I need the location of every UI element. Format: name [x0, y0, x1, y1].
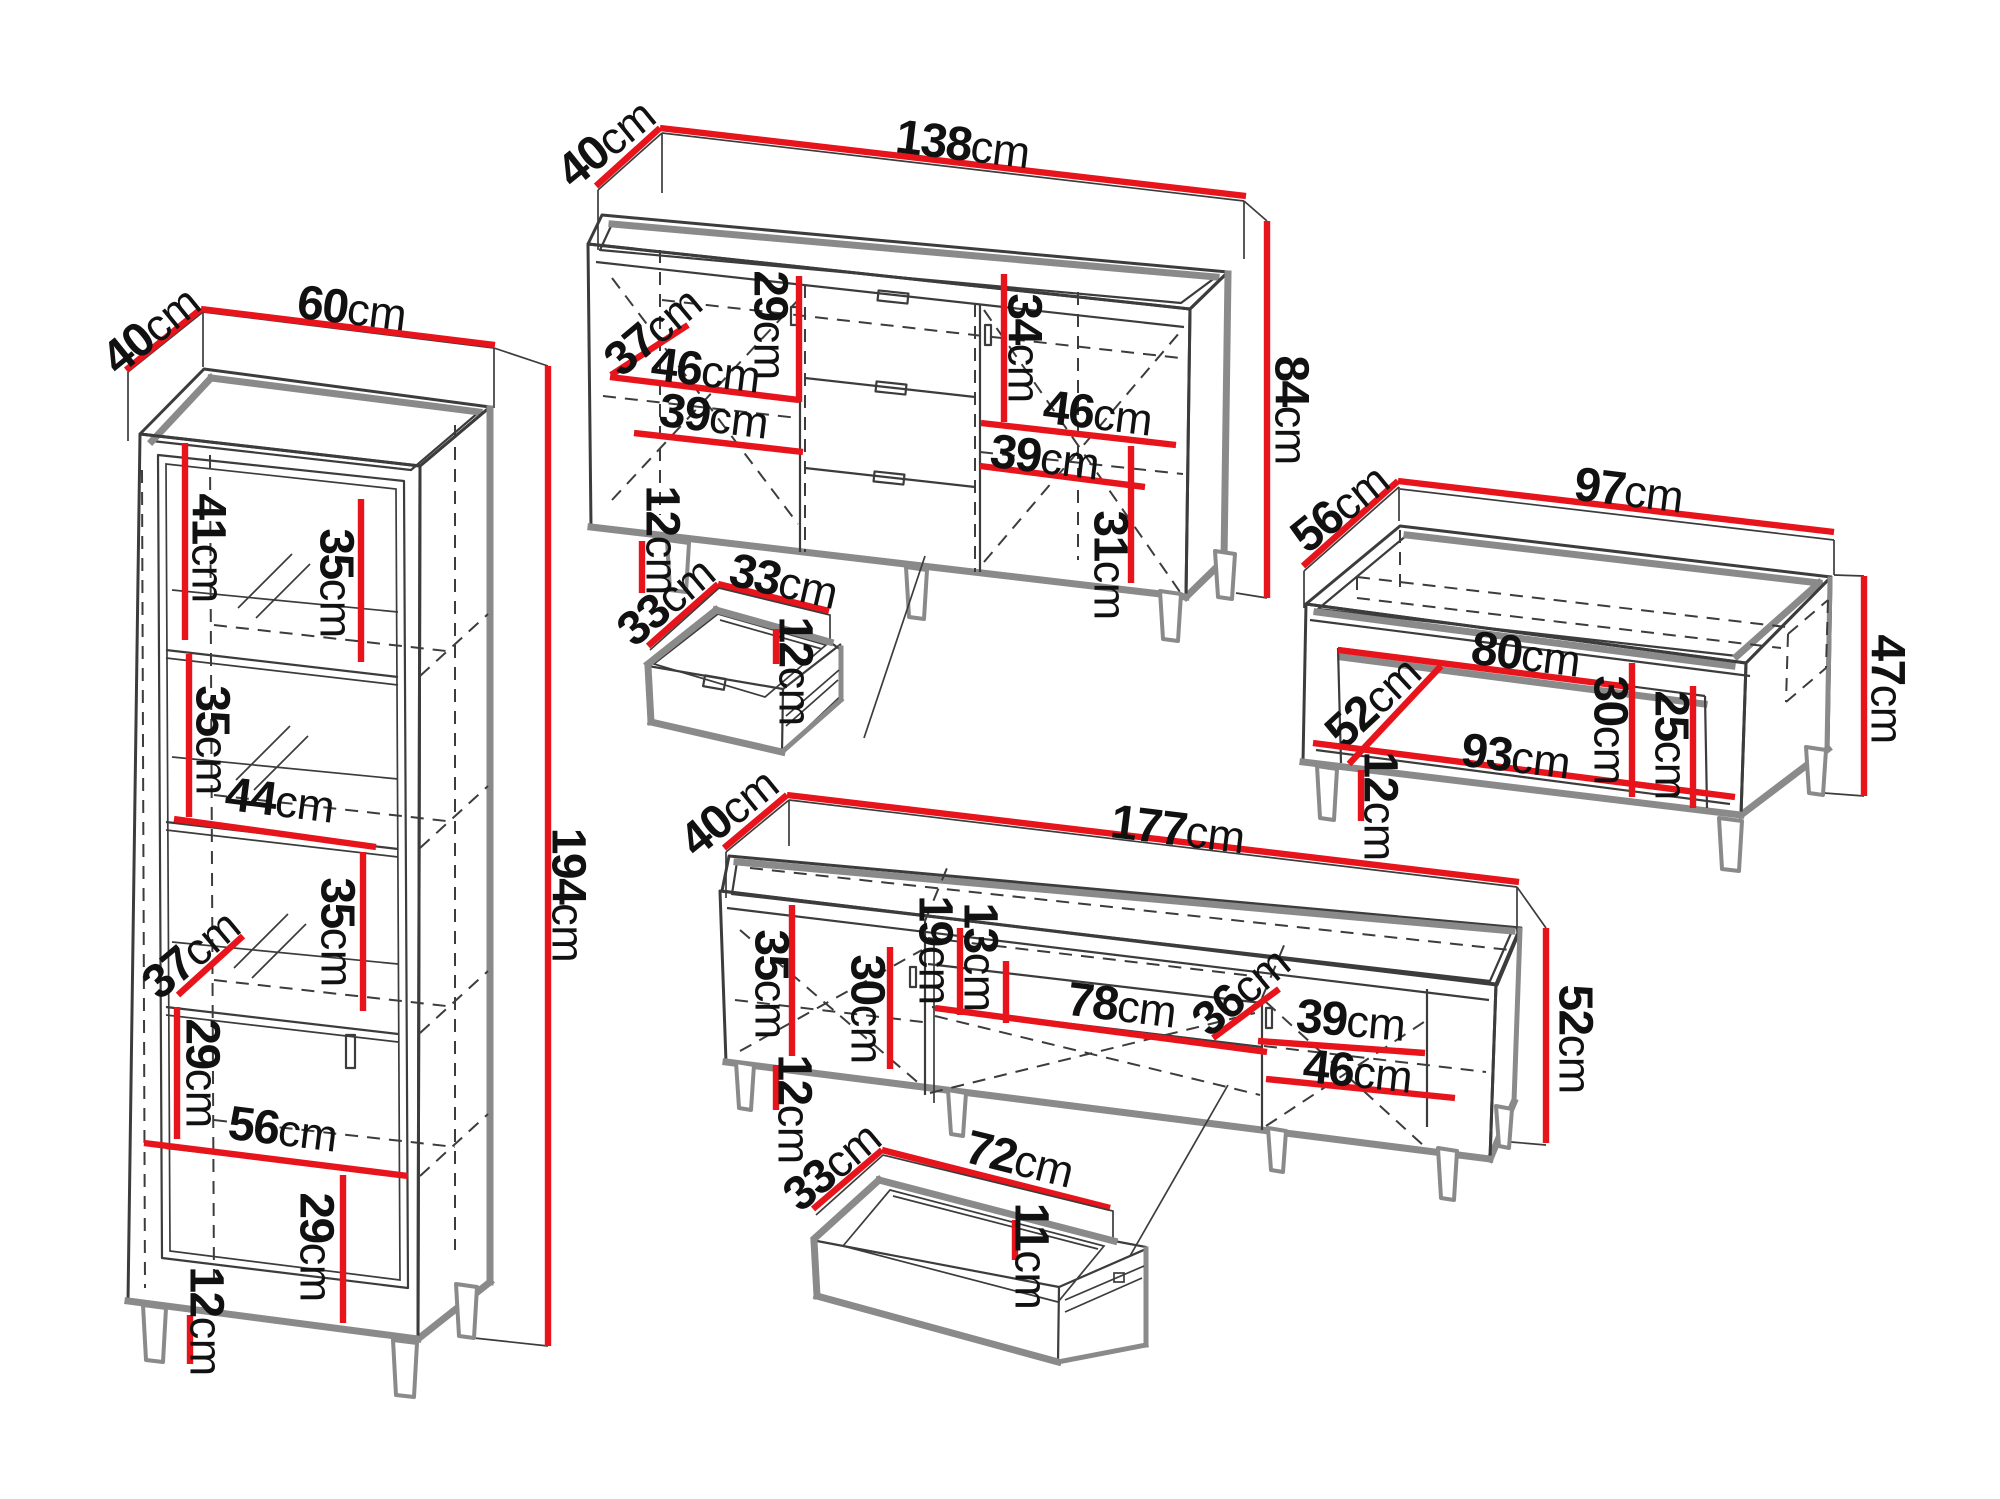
svg-text:13cm: 13cm: [954, 902, 1007, 1011]
svg-text:84cm: 84cm: [1265, 355, 1318, 464]
svg-text:35cm: 35cm: [745, 929, 798, 1038]
svg-text:41cm: 41cm: [182, 493, 235, 602]
svg-text:35cm: 35cm: [311, 877, 364, 986]
svg-text:11cm: 11cm: [1005, 1203, 1058, 1310]
svg-text:12cm: 12cm: [769, 616, 822, 725]
svg-text:194cm: 194cm: [542, 828, 595, 963]
svg-text:34cm: 34cm: [998, 293, 1051, 402]
svg-text:30cm: 30cm: [1584, 675, 1637, 784]
svg-text:30cm: 30cm: [841, 954, 894, 1063]
svg-text:29cm: 29cm: [176, 1018, 229, 1127]
svg-text:25cm: 25cm: [1645, 690, 1698, 799]
svg-text:29cm: 29cm: [290, 1192, 343, 1301]
svg-text:52cm: 52cm: [1549, 984, 1602, 1093]
svg-text:12cm: 12cm: [768, 1054, 821, 1163]
svg-text:29cm: 29cm: [744, 270, 797, 379]
svg-text:47cm: 47cm: [1861, 634, 1914, 743]
svg-text:31cm: 31cm: [1084, 510, 1137, 619]
svg-text:35cm: 35cm: [310, 528, 363, 637]
svg-text:12cm: 12cm: [180, 1266, 233, 1375]
svg-text:12cm: 12cm: [1354, 751, 1407, 860]
